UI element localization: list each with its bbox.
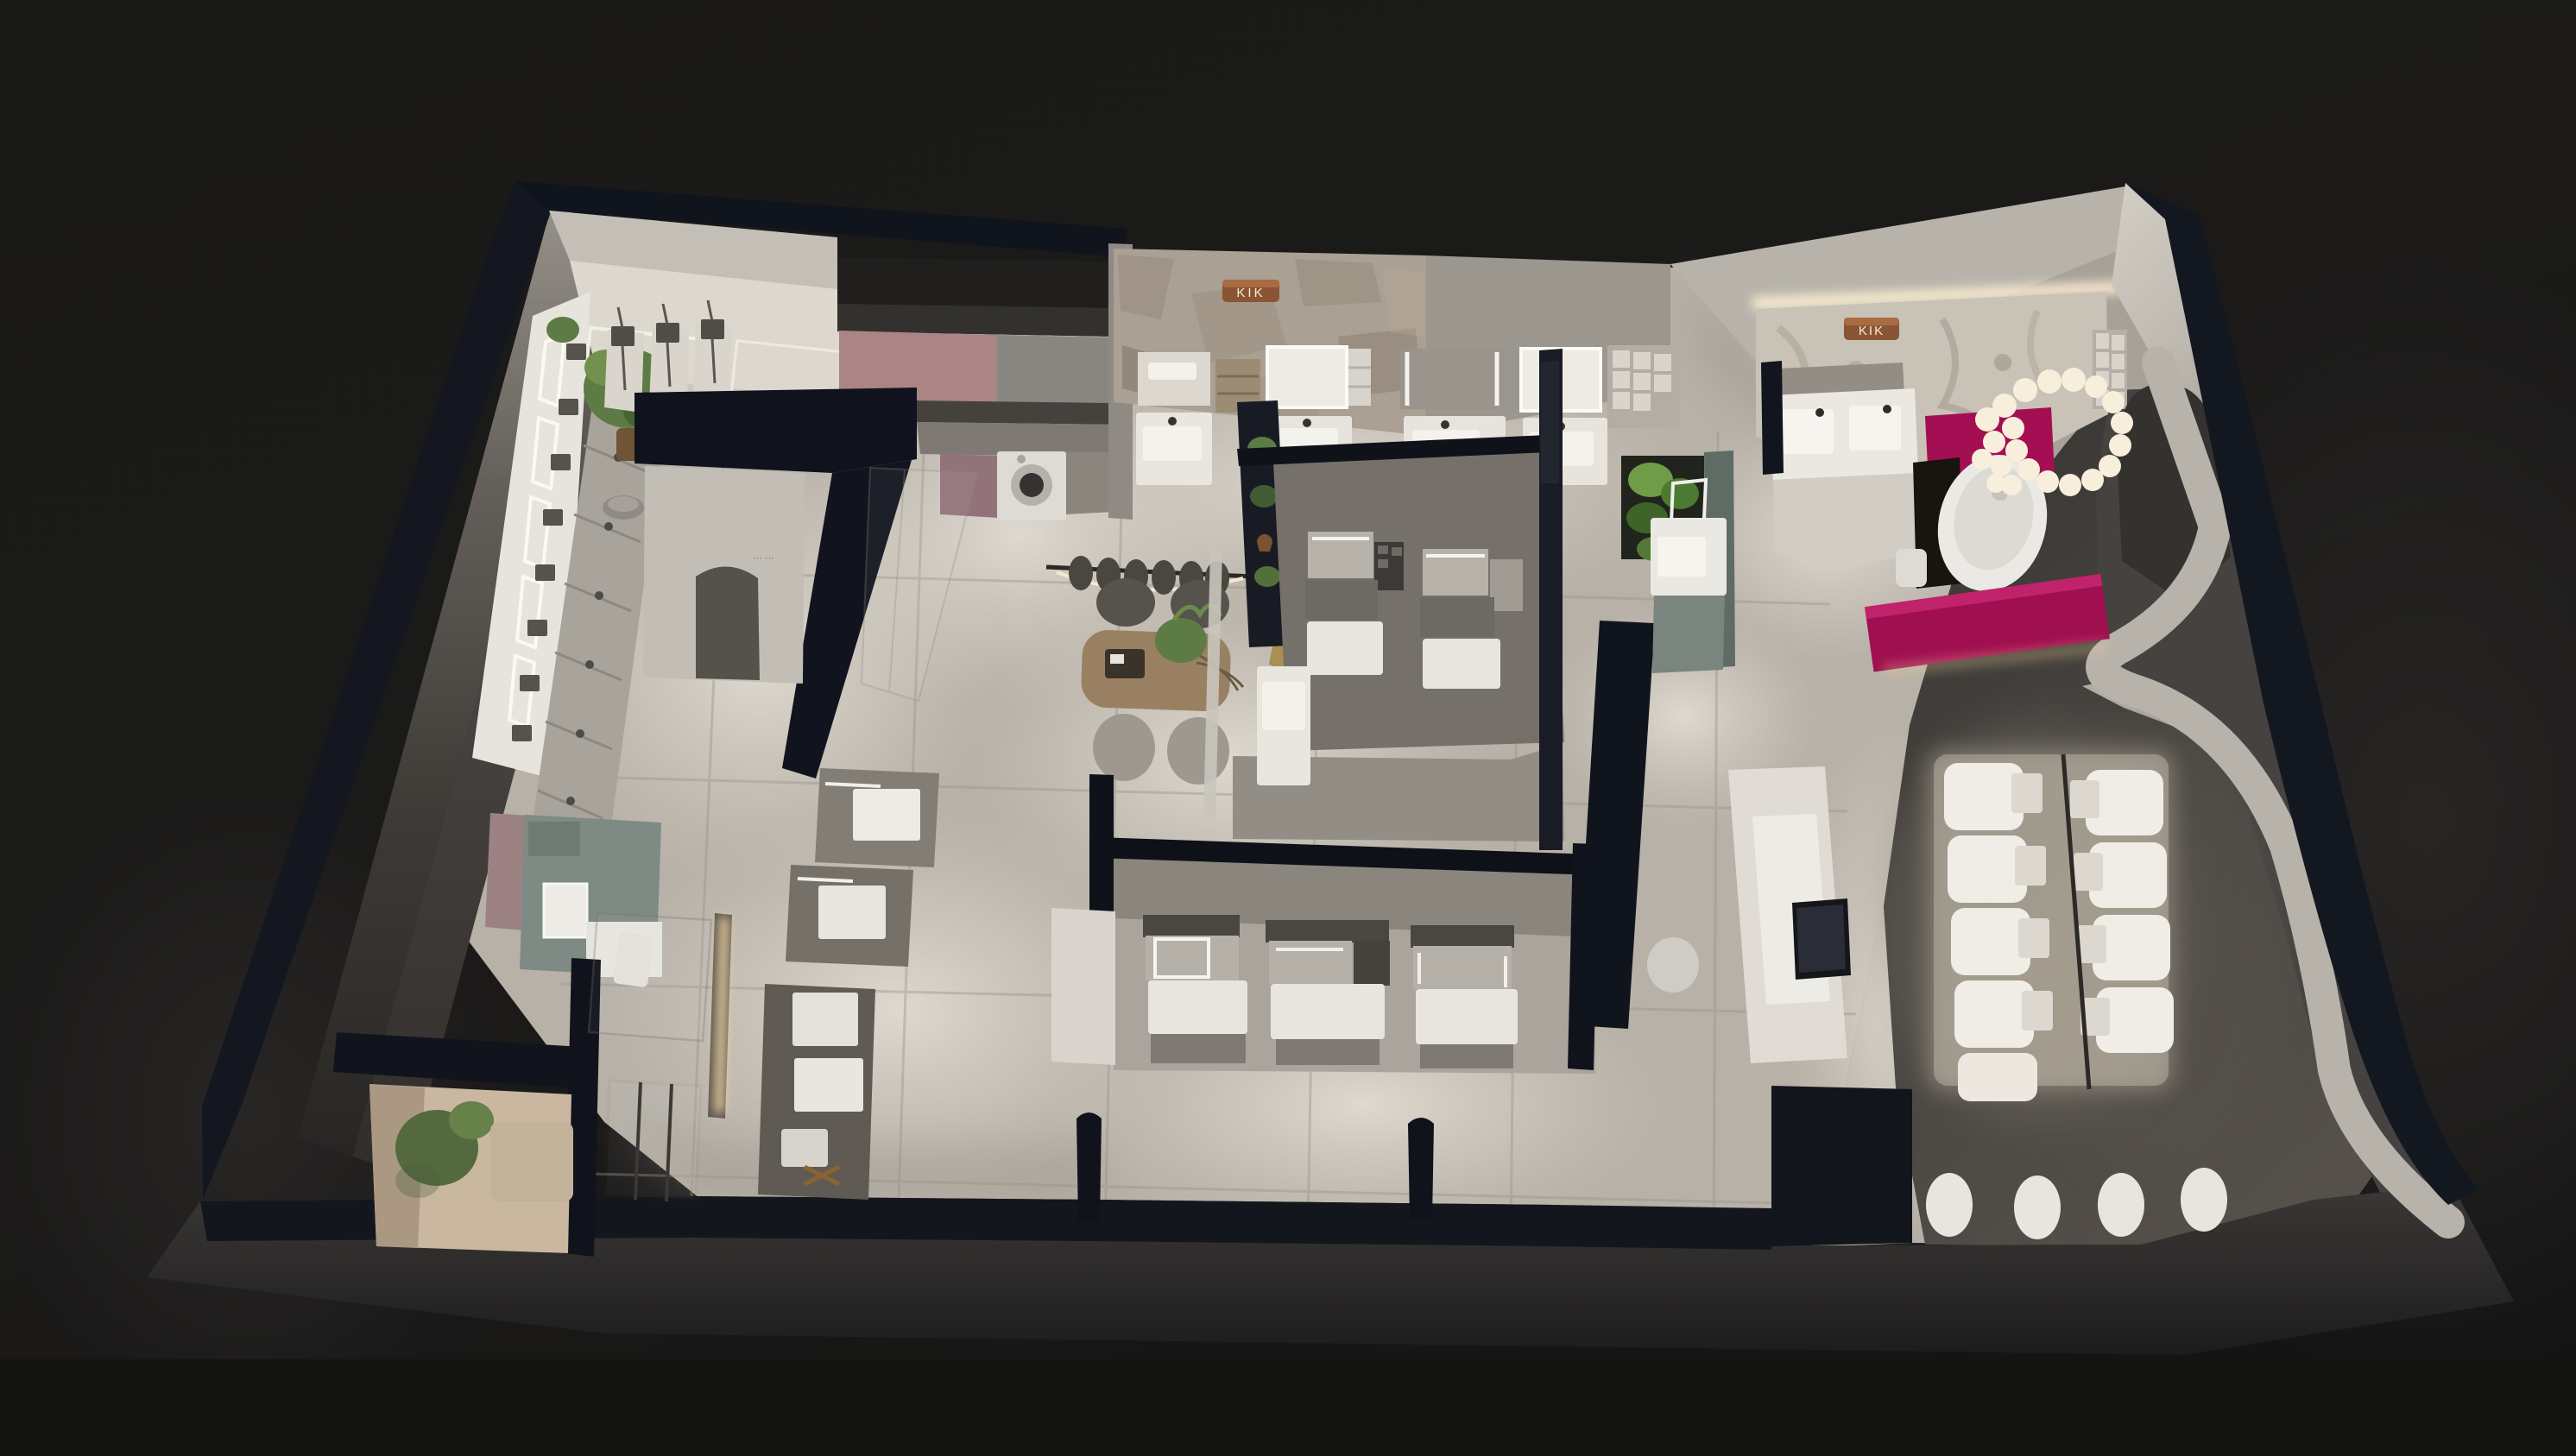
svg-text:KIK: KIK bbox=[1859, 324, 1885, 338]
svg-text:KIK: KIK bbox=[1236, 286, 1265, 300]
svg-text:··· ···: ··· ··· bbox=[753, 553, 774, 564]
